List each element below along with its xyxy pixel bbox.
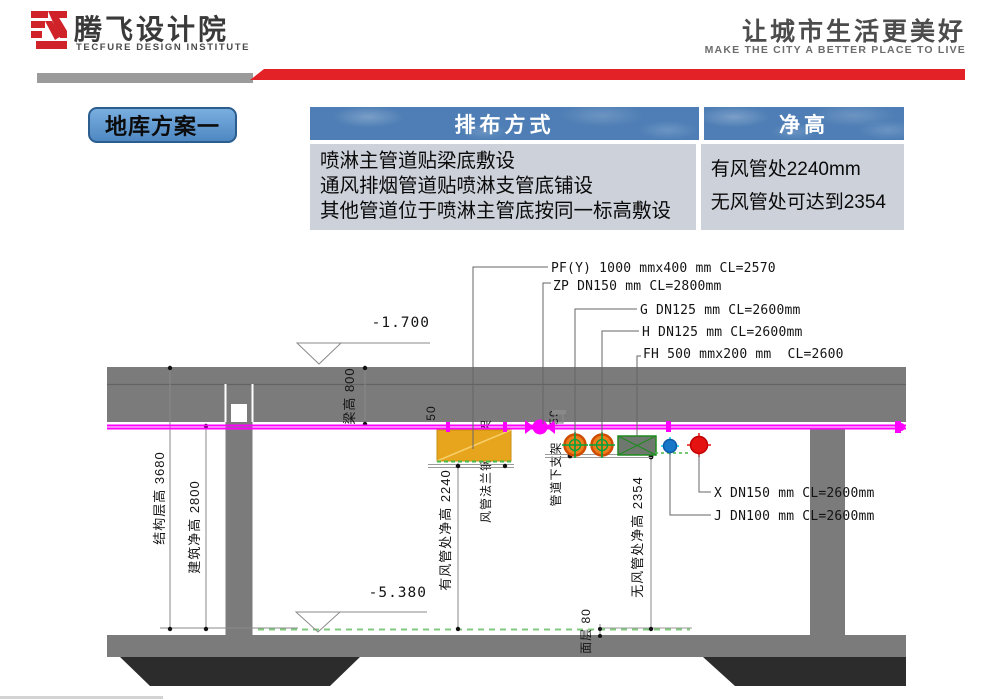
sprinkler-valve — [533, 420, 548, 435]
arrangement-cell: 喷淋主管道贴梁底敷设 通风排烟管道贴喷淋支管底铺设 其他管道位于喷淋主管底按同一… — [310, 144, 696, 230]
dim-with-duct-clear: 有风管处净高 2240 — [438, 469, 453, 591]
table-header-clear-height: 净高 — [704, 107, 904, 140]
slogan: 让城市生活更美好 — [742, 12, 966, 48]
clear-height-cell: 有风管处2240mm 无风管处可达到2354 — [701, 144, 904, 230]
table-body-row: 喷淋主管道贴梁底敷设 通风排烟管道贴喷淋支管底铺设 其他管道位于喷淋主管底按同一… — [310, 144, 904, 230]
label-h: H DN125 mm CL=2600mm — [642, 325, 803, 340]
clear-height-line-2: 无风管处可达到2354 — [711, 186, 904, 219]
column-right — [810, 429, 845, 636]
pile-cap-right — [703, 657, 906, 686]
label-pfy: PF(Y) 1000 mmx400 mm CL=2570 — [551, 261, 776, 276]
arrangement-line-2: 通风排烟管道贴喷淋支管底铺设 — [320, 174, 696, 199]
bottom-edge-artifact — [0, 696, 163, 699]
divider-gray — [37, 73, 253, 83]
label-zp: ZP DN150 mm CL=2800mm — [553, 279, 722, 294]
elevation-floor-value: -5.380 — [369, 585, 427, 601]
column-left — [226, 422, 253, 636]
dim-gap-left: 50 — [424, 405, 438, 420]
label-x: X DN150 mm CL=2600mm — [714, 486, 875, 501]
dim-beam-height: 梁高 800 — [342, 367, 357, 424]
dim-building-clear-height: 建筑净高 2800 — [187, 480, 202, 574]
scheme-label: 地库方案一 — [88, 107, 237, 143]
duct-fh — [618, 436, 690, 455]
slogan-en: MAKE THE CITY A BETTER PLACE TO LIVE — [705, 44, 966, 56]
table-header-arrangement: 排布方式 — [310, 107, 699, 140]
label-j: J DN100 mm CL=2600mm — [714, 509, 875, 524]
dim-pipe-under-support: 管道下支架 — [548, 441, 563, 506]
pile-cap-left — [120, 657, 360, 686]
company-name-en: TECFURE DESIGN INSTITUTE — [76, 42, 250, 53]
elevation-marker-ceiling — [297, 343, 430, 364]
table-header-row: 排布方式 净高 — [310, 107, 904, 140]
elevation-ceiling-value: -1.700 — [372, 315, 430, 331]
beam-pocket — [231, 404, 247, 422]
label-fh: FH 500 mmx200 mm CL=2600 — [643, 347, 844, 362]
dim-finish-layer: 面层 80 — [579, 608, 593, 654]
pipe-arrangement-table: 排布方式 净高 喷淋主管道贴梁底敷设 通风排烟管道贴喷淋支管底铺设 其他管道位于… — [310, 107, 904, 230]
clear-height-line-1: 有风管处2240mm — [711, 153, 904, 186]
slide: 腾飞设计院 TECFURE DESIGN INSTITUTE 让城市生活更美好 … — [0, 0, 1000, 700]
arrangement-line-3: 其他管道位于喷淋主管底按同一标高敷设 — [320, 199, 696, 224]
dim-no-duct-clear: 无风管处净高 2354 — [630, 476, 645, 598]
ceiling-slab — [107, 367, 906, 422]
section-drawing: 结构层高 3680 建筑净高 2800 梁高 800 有风管处净高 2240 无… — [0, 250, 1000, 700]
structure — [107, 367, 906, 686]
floor-slab — [107, 635, 906, 657]
label-g: G DN125 mm CL=2600mm — [640, 303, 801, 318]
pipe-x — [687, 433, 711, 457]
divider-red — [250, 69, 965, 80]
duct-pfy — [428, 430, 514, 468]
arrangement-line-1: 喷淋主管道贴梁底敷设 — [320, 149, 696, 174]
dim-structural-height: 结构层高 3680 — [152, 451, 167, 545]
logo-icon — [28, 8, 70, 54]
